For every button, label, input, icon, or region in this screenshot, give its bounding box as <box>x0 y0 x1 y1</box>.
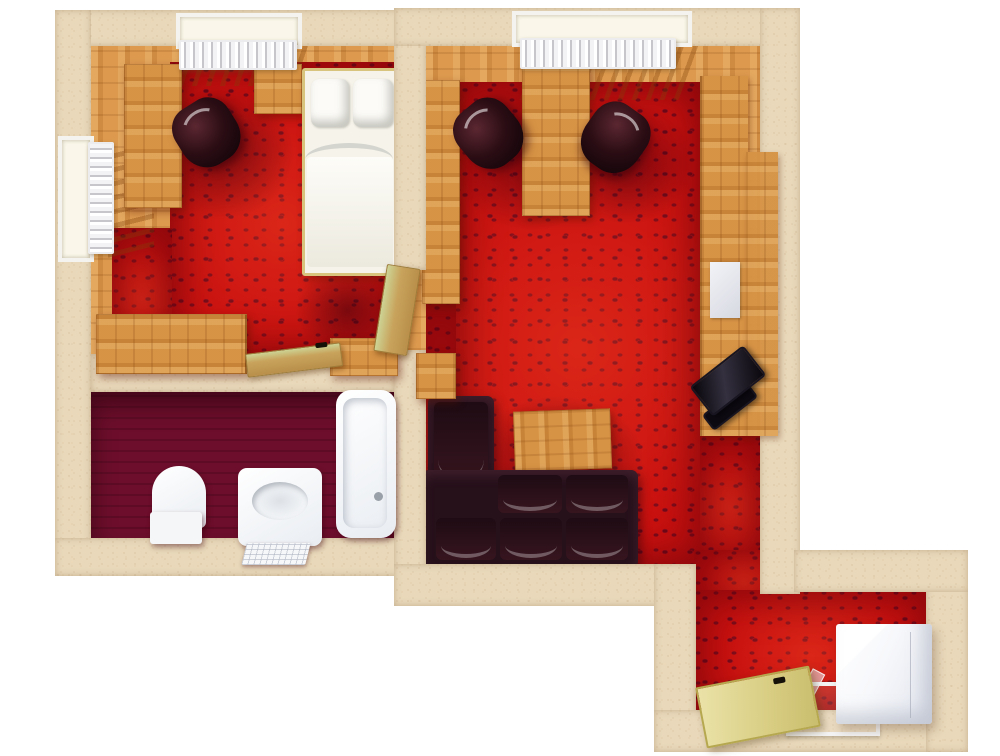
bed <box>302 68 404 276</box>
bedroom-north-radiator <box>179 40 297 70</box>
washbasin <box>238 468 322 546</box>
wall-south-living <box>394 564 694 606</box>
floor-plan-render <box>0 0 1000 756</box>
living-left-desk <box>422 80 460 304</box>
washbasin-bowl <box>252 482 308 520</box>
entry-door-handle-icon <box>773 676 786 684</box>
fridge-door-seam <box>910 632 911 718</box>
bath-mat <box>241 543 310 565</box>
living-room-carpet-right <box>700 436 760 566</box>
sofa-back-cushion-2 <box>566 475 628 513</box>
bathtub-drain-icon <box>374 492 383 501</box>
living-side-cabinet <box>416 353 456 399</box>
bedroom-nightstand <box>254 64 302 114</box>
pillow-left <box>311 79 349 127</box>
door-handle-icon <box>315 342 328 348</box>
wall-west <box>55 10 91 576</box>
sofa-back-cushion-1 <box>498 475 562 513</box>
sofa-base <box>422 470 638 568</box>
toilet-base <box>150 512 202 544</box>
living-north-radiator <box>520 38 676 69</box>
wall-divider-upper <box>394 10 426 270</box>
bathtub-basin <box>343 398 387 528</box>
sofa-seat-cushion-3 <box>566 518 628 560</box>
wall-unit-white-panel <box>710 262 740 318</box>
bathtub <box>336 390 396 538</box>
blanket-fold <box>305 143 393 176</box>
sofa-seat-cushion-1 <box>436 518 496 560</box>
pillow-right <box>353 79 393 127</box>
white-cabinet-fridge <box>836 624 932 724</box>
wall-south-left <box>55 538 421 576</box>
sofa-seat-cushion-2 <box>500 518 562 560</box>
wall-hall-north <box>794 550 968 592</box>
bedroom-sideboard <box>96 314 247 374</box>
bedroom-west-radiator <box>88 142 114 254</box>
coffee-table <box>513 408 612 471</box>
